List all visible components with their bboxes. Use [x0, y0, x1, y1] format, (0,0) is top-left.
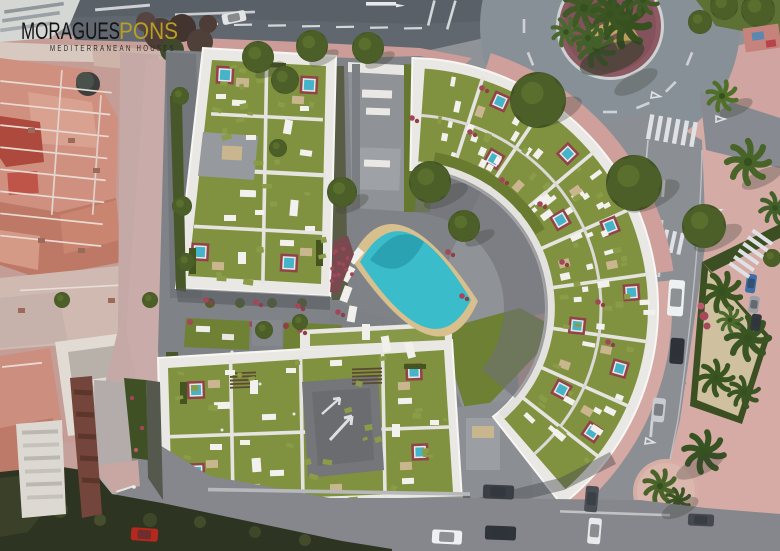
svg-text:MORAGUES: MORAGUES: [21, 18, 120, 45]
svg-text:PONS: PONS: [119, 18, 178, 45]
svg-text:MEDITERRANEAN HOUSES: MEDITERRANEAN HOUSES: [50, 44, 176, 53]
